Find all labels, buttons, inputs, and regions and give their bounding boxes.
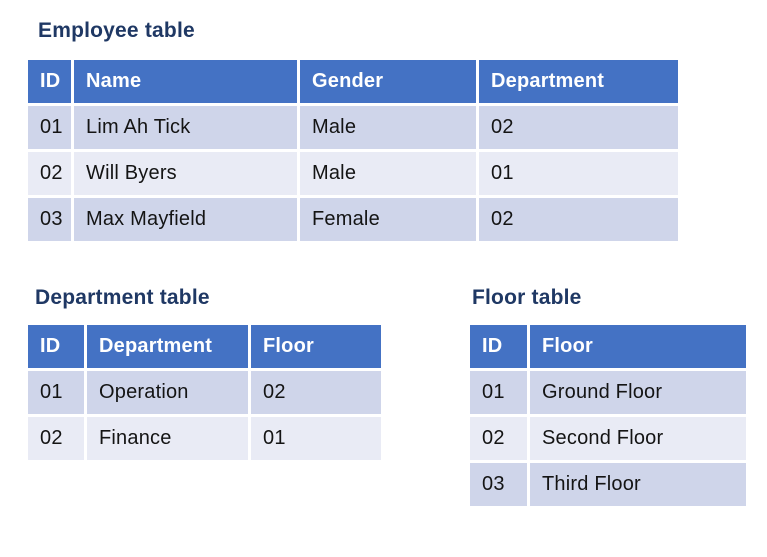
table-cell: Male — [300, 106, 476, 149]
table-cell: Female — [300, 198, 476, 241]
floor-table: ID Floor 01 Ground Floor 02 Second Floor… — [470, 325, 746, 506]
table-cell: 01 — [470, 371, 527, 414]
employee-table-section: Employee table ID Name Gender Department… — [28, 20, 678, 241]
table-cell: 02 — [28, 152, 71, 195]
header-cell: Department — [479, 60, 678, 103]
table-cell: 01 — [28, 106, 71, 149]
header-cell: Department — [87, 325, 248, 368]
table-cell: 01 — [479, 152, 678, 195]
table-cell: 03 — [28, 198, 71, 241]
table-cell: Second Floor — [530, 417, 746, 460]
employee-table: ID Name Gender Department 01 Lim Ah Tick… — [28, 60, 678, 241]
floor-table-section: Floor table ID Floor 01 Ground Floor 02 … — [470, 287, 746, 506]
table-cell: 02 — [470, 417, 527, 460]
header-cell: Floor — [530, 325, 746, 368]
table-cell: 02 — [251, 371, 381, 414]
header-cell: Gender — [300, 60, 476, 103]
table-cell: Operation — [87, 371, 248, 414]
table-cell: Male — [300, 152, 476, 195]
department-table: ID Department Floor 01 Operation 02 02 F… — [28, 325, 381, 460]
table-cell: Finance — [87, 417, 248, 460]
table-cell: Will Byers — [74, 152, 297, 195]
table-cell: 02 — [479, 198, 678, 241]
department-table-section: Department table ID Department Floor 01 … — [28, 287, 381, 460]
table-cell: 01 — [28, 371, 84, 414]
table-cell: Max Mayfield — [74, 198, 297, 241]
table-cell: 02 — [28, 417, 84, 460]
table-cell: Lim Ah Tick — [74, 106, 297, 149]
header-cell: ID — [28, 60, 71, 103]
department-table-title: Department table — [35, 287, 381, 309]
header-cell: Name — [74, 60, 297, 103]
table-cell: 02 — [479, 106, 678, 149]
table-cell: Ground Floor — [530, 371, 746, 414]
table-cell: 01 — [251, 417, 381, 460]
floor-table-title: Floor table — [472, 287, 746, 309]
header-cell: ID — [28, 325, 84, 368]
table-cell: 03 — [470, 463, 527, 506]
table-cell: Third Floor — [530, 463, 746, 506]
header-cell: ID — [470, 325, 527, 368]
employee-table-title: Employee table — [38, 20, 678, 42]
header-cell: Floor — [251, 325, 381, 368]
